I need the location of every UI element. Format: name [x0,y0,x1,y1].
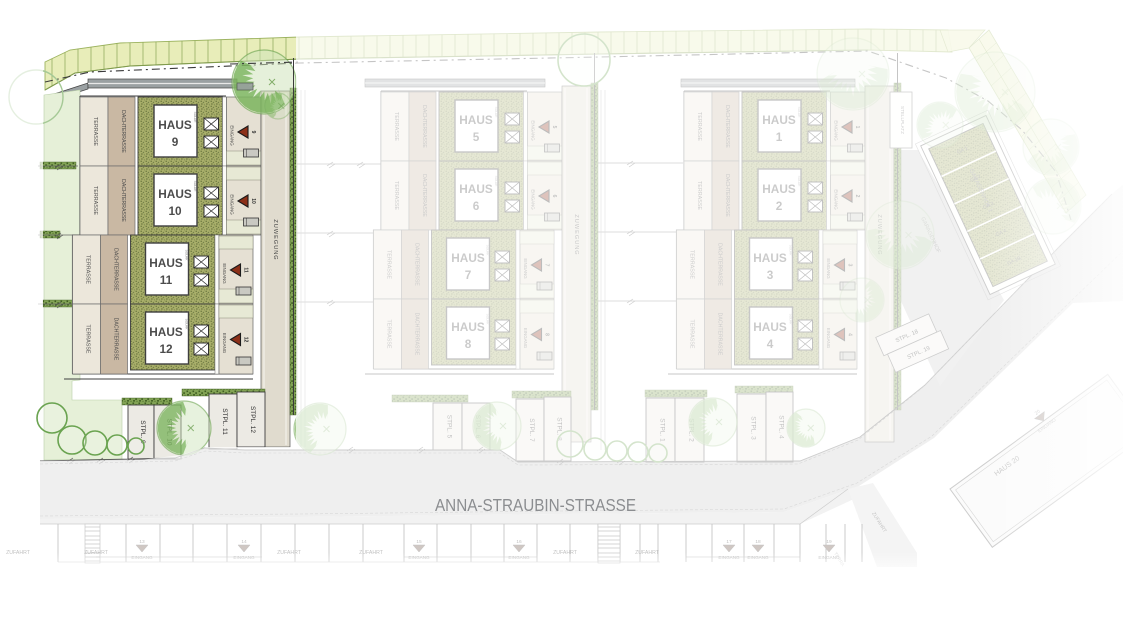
svg-text:10: 10 [168,204,182,218]
svg-text:STPL. 12: STPL. 12 [249,406,256,433]
svg-text:TERRASSE: TERRASSE [92,186,98,215]
svg-text:TERRASSE: TERRASSE [85,255,91,284]
svg-text:11: 11 [243,267,249,273]
svg-text:EINGANG: EINGANG [230,125,235,146]
svg-text:HAUS: HAUS [158,187,192,201]
svg-text:HAUS: HAUS [149,325,183,339]
svg-text:HAUS: HAUS [149,256,183,270]
svg-text:DACHTERRASSE: DACHTERRASSE [113,318,119,361]
svg-text:SOLAR: SOLAR [185,319,189,331]
svg-text:12: 12 [159,342,173,356]
svg-text:EINGANG: EINGANG [222,333,227,354]
svg-text:TERRASSE: TERRASSE [92,117,98,146]
svg-text:SOLAR: SOLAR [193,181,197,193]
svg-text:DACHTERRASSE: DACHTERRASSE [120,110,126,153]
svg-text:SOLAR: SOLAR [193,112,197,124]
svg-text:SOLAR: SOLAR [185,250,189,262]
svg-text:EINGANG: EINGANG [222,263,227,284]
svg-text:TERRASSE: TERRASSE [85,324,91,353]
svg-text:11: 11 [160,273,173,287]
svg-text:STPL. 11: STPL. 11 [221,408,228,435]
svg-text:10: 10 [250,198,256,204]
svg-text:ANNA-STRAUBIN-STRASSE: ANNA-STRAUBIN-STRASSE [435,495,636,515]
svg-text:HAUS: HAUS [158,118,192,132]
svg-text:DACHTERRASSE: DACHTERRASSE [120,179,126,222]
svg-text:EINGANG: EINGANG [230,194,235,215]
svg-text:DACHTERRASSE: DACHTERRASSE [113,248,119,291]
svg-text:ZUWEGUNG: ZUWEGUNG [272,219,278,260]
svg-text:9: 9 [250,131,256,134]
svg-text:12: 12 [243,337,249,343]
svg-text:9: 9 [172,135,179,149]
